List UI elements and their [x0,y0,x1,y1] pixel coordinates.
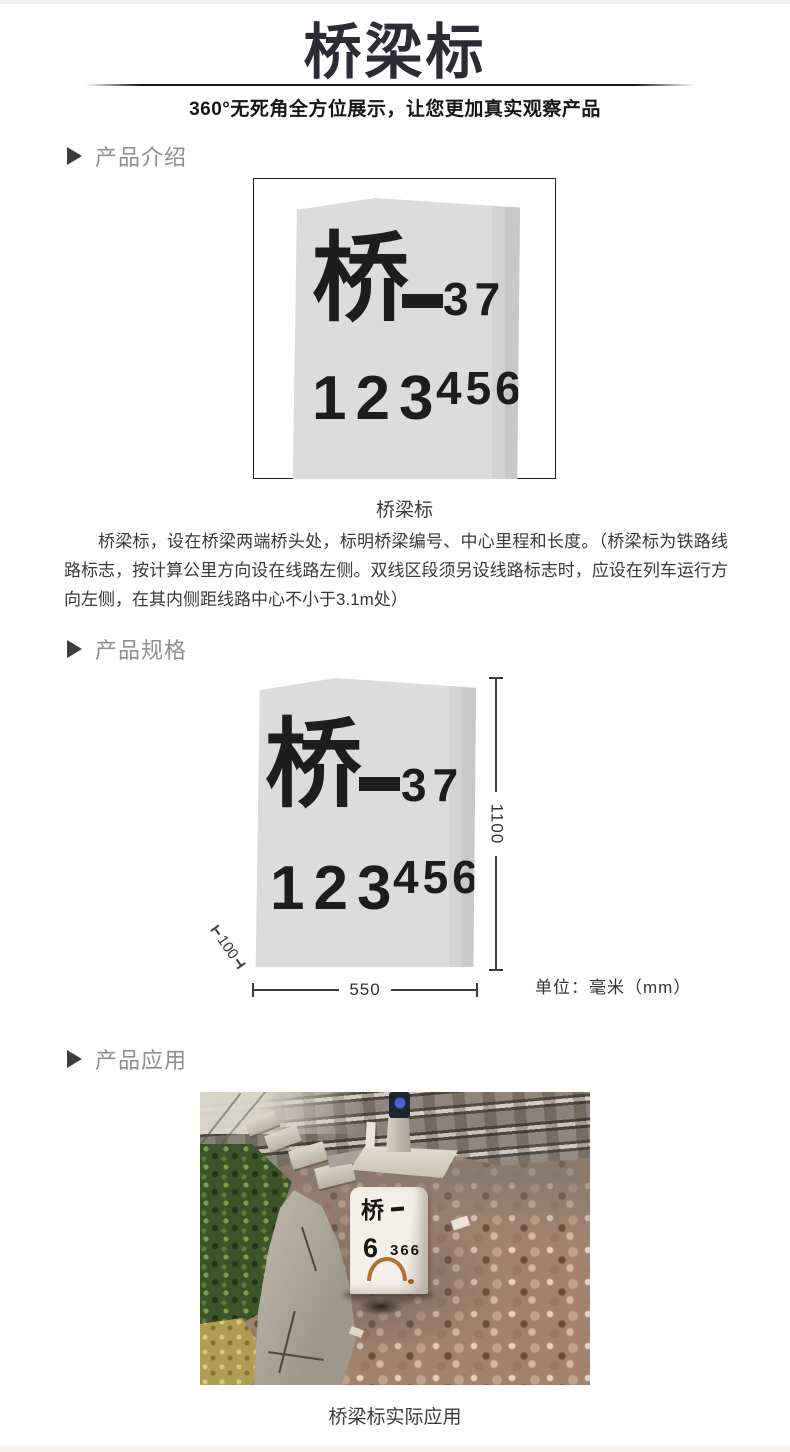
width-dimension-label: 550 [339,980,390,1000]
ground-smudge [360,1298,402,1315]
photo-marker-prefix: 桥 [361,1199,384,1222]
marker-prefix-char: 桥 [265,716,362,813]
unit-label: 单位：毫米（mm） [535,973,691,998]
marker-meter-number: 456 [393,854,482,900]
triangle-bullet-icon [67,640,82,658]
photo-marker-dash [391,1207,404,1212]
marker-serial-number: 37 [401,762,464,808]
path-crack [301,1227,317,1271]
height-dimension-label-box: 1100 [488,792,504,856]
path-crack [278,1311,295,1374]
section-label-application: 产品应用 [95,1043,187,1075]
dimension-end-cap [476,983,478,997]
triangle-bullet-icon [67,147,82,165]
width-dimension-line: 550 [252,982,478,998]
marker-meter-number: 456 [436,365,525,411]
dimension-end-cap [489,969,503,971]
path-crack [268,1351,324,1361]
dimension-line-segment [495,856,497,969]
page-title: 桥梁标 [0,23,790,83]
adjacent-image-edge-top [0,0,790,4]
photo-marker-kilometer: 6 [363,1235,378,1262]
marker-dash [359,777,400,791]
depth-dimension-label: 100 [213,930,244,964]
section-label-specs: 产品规格 [95,633,187,665]
real-bridge-marker: 桥 6 366 [350,1187,428,1294]
product-description: 桥梁标，设在桥梁两端桥头处，标明桥梁编号、中心里程和长度。（桥梁标为铁路线路标志… [64,527,728,614]
marker-kilometer-number: 123 [270,858,400,920]
dimension-line-segment [495,679,497,792]
rust-stain-dot [408,1279,414,1284]
marker-prefix-char: 桥 [312,230,409,327]
small-white-post [365,1122,375,1148]
application-photo: 桥 6 366 [200,1092,590,1385]
subtitle: 360°无死角全方位展示，让您更加真实观察产品 [0,94,790,121]
product-intro-figure: 桥 37 123 456 [253,178,556,479]
marker-dash [402,294,443,308]
adjacent-image-edge-bottom [0,1445,790,1452]
section-header-application: 产品应用 [67,1046,187,1072]
height-dimension-label: 1100 [486,804,506,845]
spec-diagram: 桥 37 123 456 1100 550 100 [0,668,790,1013]
height-dimension-line: 1100 [488,677,504,971]
signal-head [389,1092,410,1118]
marker-kilometer-number: 123 [312,368,442,430]
section-header-specs: 产品规格 [67,636,187,662]
title-divider [85,84,695,86]
section-header-intro: 产品介绍 [67,143,187,169]
bridge-marker-illustration: 桥 37 123 456 [290,198,521,479]
bridge-marker-diagram: 桥 37 123 456 [253,678,477,967]
marker-serial-number: 37 [443,276,506,322]
product-detail-page: 桥梁标 360°无死角全方位展示，让您更加真实观察产品 产品介绍 桥 37 12… [0,0,790,1452]
section-label-intro: 产品介绍 [95,140,187,172]
signal-pillar [386,1114,411,1152]
dimension-line-segment [391,989,476,991]
dimension-line-segment [254,989,339,991]
application-photo-caption: 桥梁标实际应用 [0,1402,790,1429]
depth-dimension-line: 100 [201,914,254,981]
intro-figure-caption: 桥梁标 [253,495,556,522]
triangle-bullet-icon [67,1050,82,1068]
photo-marker-meters: 366 [390,1243,421,1258]
